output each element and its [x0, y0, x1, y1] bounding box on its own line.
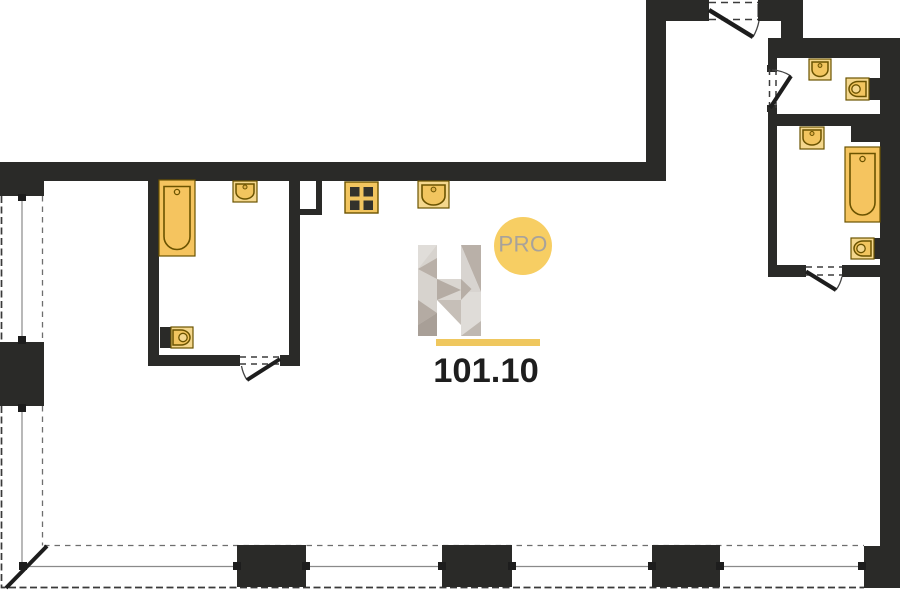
svg-text:PRO: PRO	[498, 232, 547, 257]
svg-text:101.10: 101.10	[433, 352, 539, 390]
